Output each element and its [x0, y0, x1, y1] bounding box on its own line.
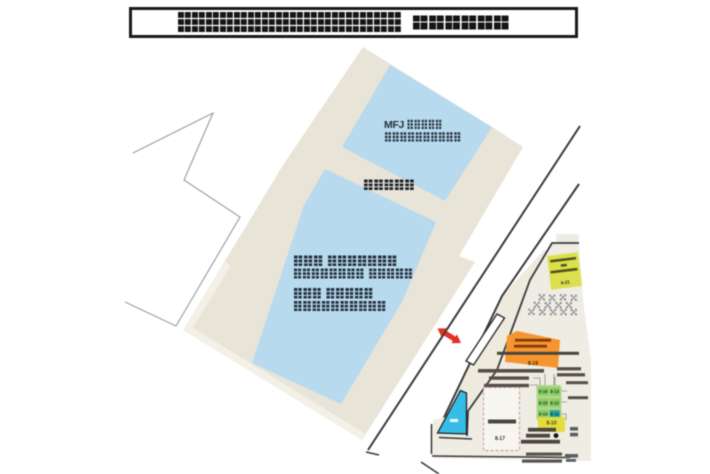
- svg-text:8-12: 8-12: [550, 400, 559, 405]
- svg-text:MFJ: MFJ: [384, 119, 405, 131]
- svg-text:8-13: 8-13: [550, 389, 559, 394]
- svg-text:8-19: 8-19: [528, 361, 538, 367]
- svg-text:8-10: 8-10: [546, 421, 556, 427]
- svg-text:8-15: 8-15: [539, 400, 548, 405]
- svg-text:8-17: 8-17: [495, 436, 505, 442]
- svg-text:8-16: 8-16: [539, 389, 548, 394]
- svg-text:8-14: 8-14: [539, 412, 548, 417]
- svg-text:8-11: 8-11: [550, 412, 559, 417]
